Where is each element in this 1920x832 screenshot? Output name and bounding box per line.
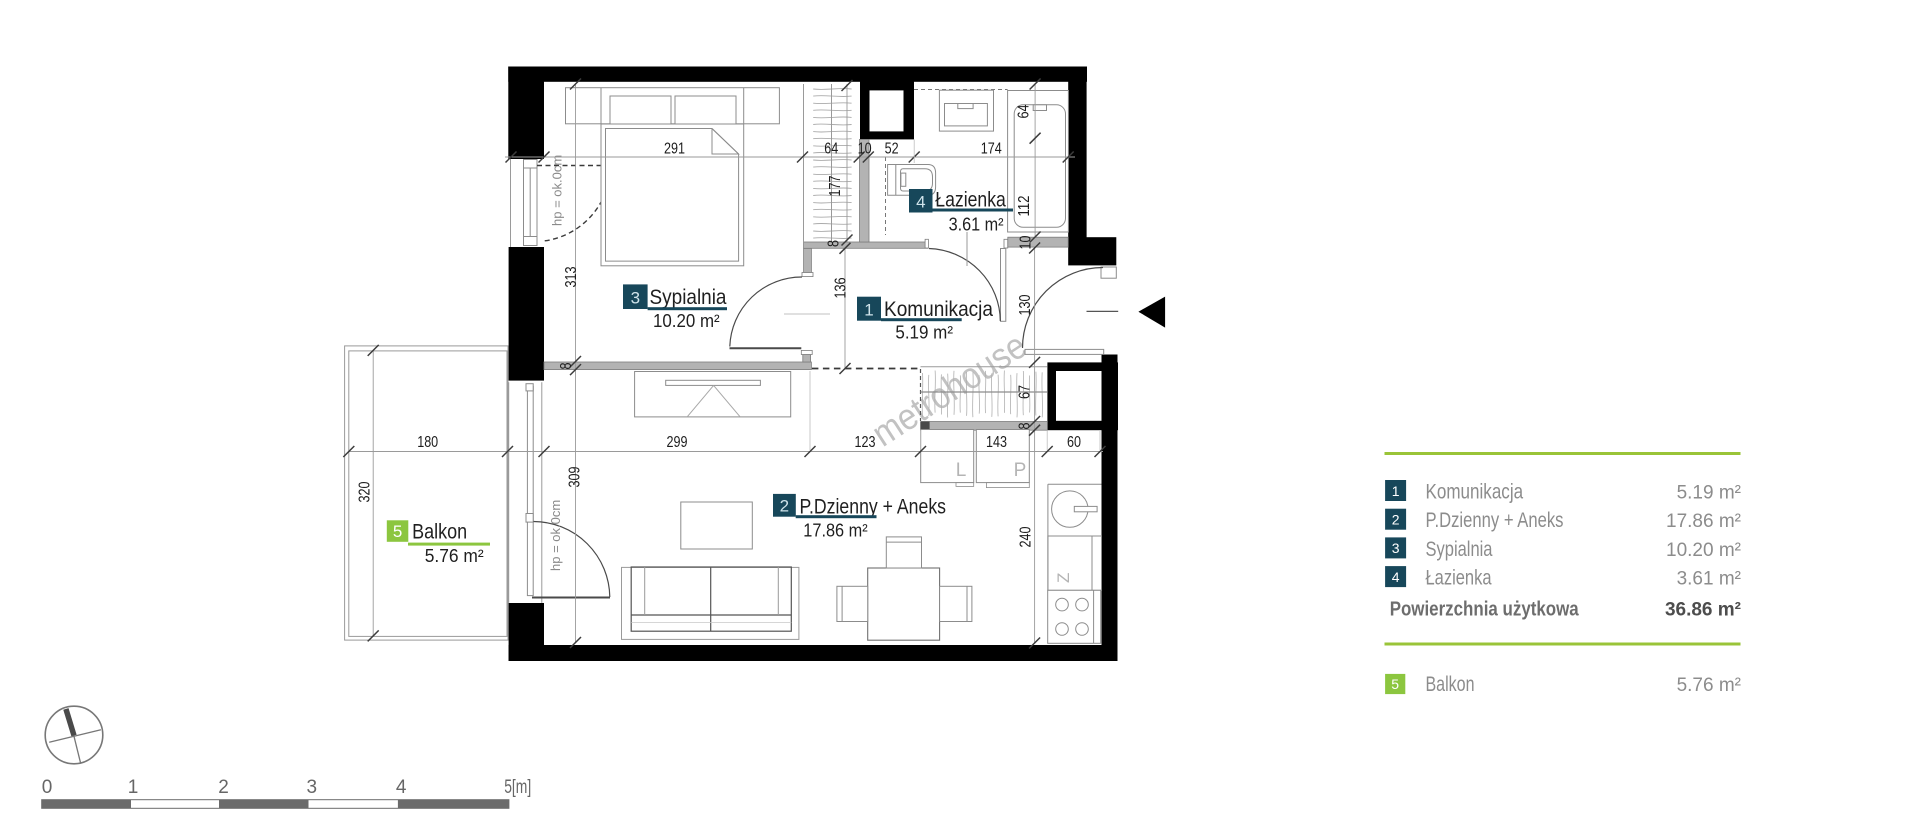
svg-text:4: 4 <box>396 777 407 798</box>
svg-text:180: 180 <box>417 434 438 451</box>
svg-text:Komunikacja: Komunikacja <box>1426 481 1524 504</box>
svg-text:174: 174 <box>981 141 1002 158</box>
svg-text:320: 320 <box>357 481 374 502</box>
svg-text:5.19 m²: 5.19 m² <box>895 323 953 343</box>
svg-text:143: 143 <box>986 434 1007 451</box>
svg-text:291: 291 <box>664 141 685 158</box>
svg-text:Sypialnia: Sypialnia <box>1426 538 1493 561</box>
svg-text:2: 2 <box>1392 512 1400 528</box>
svg-text:36.86 m²: 36.86 m² <box>1665 599 1741 620</box>
svg-text:299: 299 <box>667 434 688 451</box>
svg-text:1: 1 <box>1392 483 1400 499</box>
svg-text:Balkon: Balkon <box>412 521 467 544</box>
svg-text:240: 240 <box>1017 526 1034 547</box>
svg-text:P.Dzienny + Aneks: P.Dzienny + Aneks <box>800 496 947 519</box>
svg-text:hp = ok.0cm: hp = ok.0cm <box>550 155 565 226</box>
svg-text:64: 64 <box>1016 104 1033 118</box>
svg-text:8: 8 <box>558 362 575 369</box>
svg-text:52: 52 <box>885 141 899 158</box>
svg-text:5[m]: 5[m] <box>504 777 531 798</box>
svg-text:309: 309 <box>567 466 584 487</box>
svg-text:Komunikacja: Komunikacja <box>884 298 993 321</box>
svg-text:5: 5 <box>1391 676 1399 692</box>
svg-text:5: 5 <box>393 522 402 541</box>
svg-text:4: 4 <box>916 192 925 211</box>
svg-text:130: 130 <box>1017 294 1034 315</box>
svg-text:64: 64 <box>824 141 838 158</box>
svg-text:1: 1 <box>864 300 873 319</box>
svg-text:5.76 m²: 5.76 m² <box>425 546 484 566</box>
svg-text:P.Dzienny + Aneks: P.Dzienny + Aneks <box>1426 509 1564 532</box>
svg-text:P: P <box>1014 460 1027 481</box>
svg-text:123: 123 <box>855 434 876 451</box>
svg-text:Łazienka: Łazienka <box>935 189 1006 212</box>
svg-text:17.86 m²: 17.86 m² <box>1666 511 1741 532</box>
svg-text:3: 3 <box>307 777 318 798</box>
svg-text:L: L <box>956 460 967 481</box>
svg-text:10: 10 <box>1017 235 1034 249</box>
svg-text:136: 136 <box>833 277 850 298</box>
svg-text:Z: Z <box>1054 573 1073 583</box>
svg-text:17.86 m²: 17.86 m² <box>803 521 867 541</box>
svg-text:Balkon: Balkon <box>1426 673 1475 696</box>
svg-text:5.19 m²: 5.19 m² <box>1677 483 1741 504</box>
svg-text:3.61 m²: 3.61 m² <box>949 215 1004 235</box>
svg-text:5.76 m²: 5.76 m² <box>1677 675 1741 696</box>
svg-text:10.20 m²: 10.20 m² <box>1666 540 1741 561</box>
svg-text:2: 2 <box>780 497 789 516</box>
svg-text:8: 8 <box>826 240 843 247</box>
svg-text:1: 1 <box>128 777 139 798</box>
svg-text:2: 2 <box>218 777 229 798</box>
svg-text:313: 313 <box>563 266 580 287</box>
svg-text:3.61 m²: 3.61 m² <box>1677 569 1741 590</box>
svg-text:Powierzchnia użytkowa: Powierzchnia użytkowa <box>1390 598 1580 620</box>
svg-text:112: 112 <box>1016 195 1033 216</box>
svg-text:hp = ok.0cm: hp = ok.0cm <box>548 500 563 571</box>
svg-text:0: 0 <box>42 777 53 798</box>
svg-text:10.20 m²: 10.20 m² <box>653 311 720 331</box>
svg-text:10: 10 <box>858 141 872 158</box>
svg-text:8: 8 <box>1017 422 1034 429</box>
svg-text:3: 3 <box>1392 540 1400 556</box>
svg-text:Łazienka: Łazienka <box>1426 567 1492 590</box>
svg-text:177: 177 <box>827 175 844 196</box>
svg-text:60: 60 <box>1067 434 1081 451</box>
svg-text:67: 67 <box>1017 385 1034 399</box>
svg-text:Sypialnia: Sypialnia <box>650 286 727 309</box>
svg-text:3: 3 <box>631 289 640 308</box>
svg-text:4: 4 <box>1392 569 1400 585</box>
